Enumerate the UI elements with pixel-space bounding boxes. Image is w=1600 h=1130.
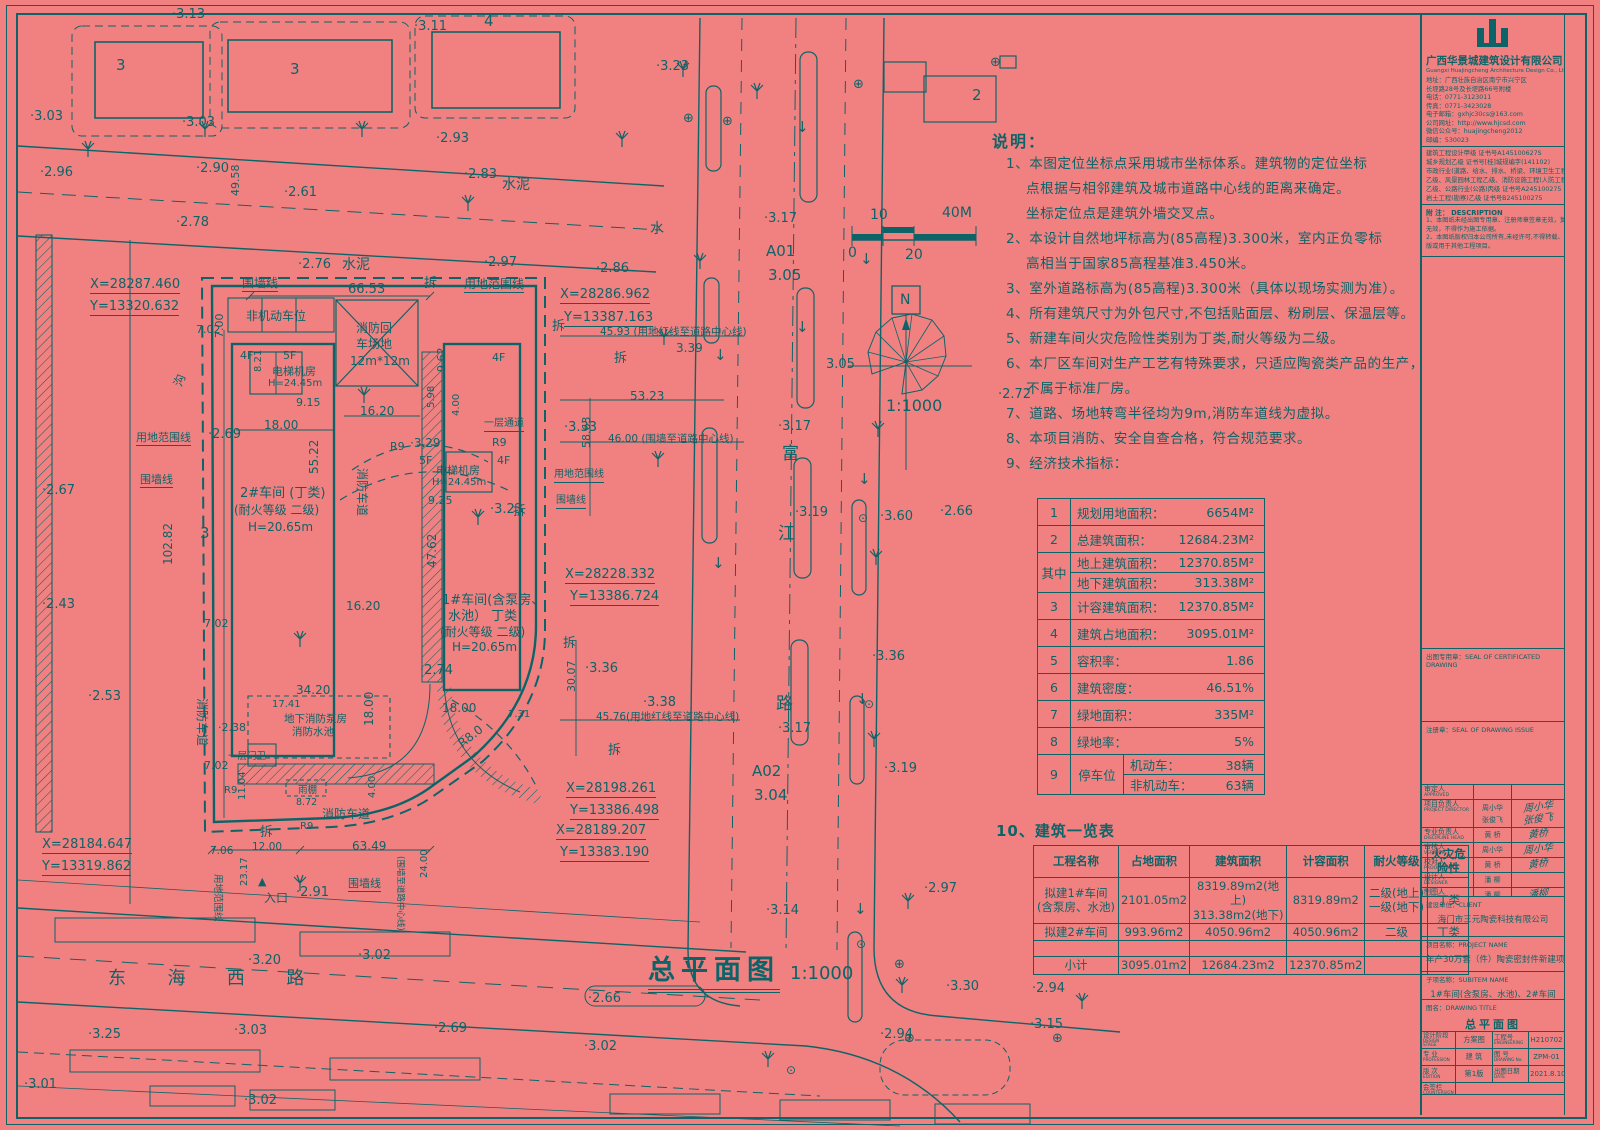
- info-grid-label: 会签栏COUNTERSIGN: [1422, 1083, 1456, 1095]
- personnel-table: 审定人APPROVED项目负责人PROJECT DIRECTOR周小华张俊飞周小…: [1422, 785, 1564, 897]
- personnel-role-cn: 设计人: [1424, 874, 1471, 881]
- econ-body: 计容建筑面积：12370.85M²: [1071, 593, 1264, 619]
- building-table-header: 占地面积: [1119, 846, 1190, 878]
- drawing-sheet: ·3.13·3.11433·3.232·3.03·2.96·3.03·2.93·…: [0, 0, 1600, 1130]
- main-title-scale: 1:1000: [790, 963, 853, 984]
- building-table-row: 拟建2#车间993.96m24050.96m24050.96m2二级丁类: [1034, 923, 1469, 940]
- signature-text: 黄桥: [1528, 828, 1548, 843]
- subitem-block: 子项名称：SUBITEM NAME 1#车间(含泵房、水池)、2#车间: [1422, 972, 1564, 1000]
- certificate-line: 市政行业(道路、给水、排水、桥梁、环境卫生工程): [1426, 167, 1560, 176]
- note-line: 5、新建车间火灾危险性类别为丁类,耐火等级为二级。: [992, 327, 1420, 352]
- building-table-header: 计容面积: [1287, 846, 1365, 878]
- building-table-cell: 8319.89m2(地上) 313.38m2(地下): [1190, 877, 1287, 923]
- personnel-name-text: 黄 桥: [1484, 829, 1500, 841]
- description-label: 附 注： DESCRIPTION: [1426, 207, 1560, 217]
- personnel-role-en: APPROVED: [1424, 793, 1471, 798]
- building-table-cell: 3095.01m2: [1119, 957, 1190, 974]
- building-table-cell: 12684.23m2: [1190, 957, 1287, 974]
- info-grid-label-en: ENGINEERING: [1494, 1041, 1527, 1046]
- personnel-signature: 潘柳: [1512, 888, 1564, 897]
- econ-subcol: 机动车：38辆非机动车：63辆: [1124, 755, 1264, 794]
- econ-no: 8: [1038, 728, 1071, 754]
- main-title: 总平面图1:1000: [648, 948, 853, 987]
- building-table-row: 小计3095.01m212684.23m212370.85m2: [1034, 957, 1469, 974]
- econ-value: 1.86: [1226, 653, 1254, 668]
- certificate-line: 乙级、风景园林工程乙级、消防设施工程(人防工程): [1426, 176, 1560, 185]
- econ-row: 其中地上建筑面积：12370.85M²地下建筑面积：313.38M²: [1038, 552, 1264, 592]
- note-line: 坐标定位点是建筑外墙交叉点。: [992, 202, 1420, 227]
- info-grid-value: 建 筑: [1456, 1049, 1493, 1065]
- project-name: 年产30万套（件）陶瓷密封件新建项目: [1426, 953, 1560, 965]
- personnel-role: 制图人CARTOGRAPHIC MAN: [1422, 888, 1474, 897]
- info-grid-label: 专 业PROFESSION: [1422, 1049, 1456, 1065]
- drawing-title-value: 总平面图: [1426, 1016, 1560, 1032]
- note-line: 7、道路、场地转弯半径均为9m,消防车道线为虚拟。: [992, 402, 1420, 427]
- company-contact-line: 地址：广西壮族自治区南宁市兴宁区: [1426, 77, 1560, 86]
- personnel-signature: 黄桥: [1512, 828, 1564, 842]
- note-line: 6、本厂区车间对生产工艺有特殊要求，只适应陶瓷类产品的生产，: [992, 352, 1420, 377]
- econ-no: 9: [1038, 755, 1071, 794]
- info-grid-row: 会签栏COUNTERSIGN: [1422, 1083, 1564, 1095]
- company-contact-line: 长堽路28号及长堽路66号附楼: [1426, 86, 1560, 95]
- drawing-info-grid: 设计阶段DESIGN STAGE方案图工程号ENGINEERINGH210702…: [1422, 1032, 1564, 1095]
- notes-lines: 1、本图定位坐标点采用城市坐标体系。建筑物的定位坐标点根据与相邻建筑及城市道路中…: [992, 152, 1420, 477]
- company-name: 广西华景城建筑设计有限公司: [1426, 53, 1560, 68]
- building-table-cell: 二级(地上) 一级(地下): [1365, 877, 1428, 923]
- notes-panel: 说明： 1、本图定位坐标点采用城市坐标体系。建筑物的定位坐标点根据与相邻建筑及城…: [992, 128, 1420, 477]
- econ-row: 8绿地率：5%: [1038, 727, 1264, 754]
- info-grid-label-en: PROFESSION: [1423, 1058, 1454, 1063]
- econ-value: 5%: [1234, 734, 1254, 749]
- client-block: 建设单位：CLIENT 海门市三元陶瓷科技有限公司: [1422, 897, 1564, 937]
- building-table-header: 建筑面积: [1190, 846, 1287, 878]
- subitem-name: 1#车间(含泵房、水池)、2#车间: [1426, 988, 1560, 1000]
- building-table-cell: [1119, 941, 1190, 957]
- drawing-title-block: 图名：DRAWING TITLE 总平面图: [1422, 1000, 1564, 1032]
- note-line: 点根据与相邻建筑及城市道路中心线的距离来确定。: [992, 177, 1420, 202]
- personnel-signature: [1512, 873, 1564, 887]
- econ-label: 建筑占地面积：: [1077, 624, 1165, 643]
- econ-no: 3: [1038, 593, 1071, 619]
- building-table-cell: 8319.89m2: [1287, 877, 1365, 923]
- info-grid-label-en: DESIGN STAGE: [1423, 1039, 1454, 1048]
- info-grid-row: 版 次EDITION第1版出图日期DATE2021.8.10: [1422, 1066, 1564, 1083]
- personnel-role: 设计人DESIGNER: [1422, 873, 1474, 887]
- econ-label: 规划用地面积：: [1077, 503, 1165, 522]
- building-table-cell: 二级: [1365, 923, 1428, 940]
- economic-indicators-table: 1规划用地面积：6654M²2总建筑面积：12684.23M²其中地上建筑面积：…: [1037, 498, 1265, 795]
- description-line: 版或用于其他工程项目。: [1426, 243, 1560, 252]
- title-block-tail: [1422, 1095, 1564, 1115]
- personnel-role: 项目负责人PROJECT DIRECTOR: [1422, 800, 1474, 827]
- econ-label: 容积率：: [1077, 651, 1127, 670]
- personnel-name: 周小华: [1474, 843, 1512, 857]
- econ-label: 计容建筑面积：: [1077, 597, 1165, 616]
- econ-value: 38辆: [1226, 755, 1254, 774]
- econ-body: 规划用地面积：6654M²: [1071, 499, 1264, 525]
- description-block: 附 注： DESCRIPTION 1、本图纸未经出图专用章、注册师章签章无效，复…: [1422, 205, 1564, 257]
- note-line: 2、本设计自然地坪标高为(85高程)3.300米，室内正负零标: [992, 227, 1420, 252]
- econ-no: 6: [1038, 674, 1071, 700]
- info-grid-label-en: DRAWING No.: [1494, 1058, 1527, 1063]
- econ-value: 6654M²: [1206, 505, 1254, 520]
- personnel-signature: 周小华张俊飞: [1512, 800, 1564, 827]
- personnel-name-text: 周小华: [1482, 844, 1503, 856]
- econ-no: 7: [1038, 701, 1071, 727]
- note-line: 9、经济技术指标：: [992, 452, 1420, 477]
- econ-row: 3计容建筑面积：12370.85M²: [1038, 592, 1264, 619]
- econ-value: 335M²: [1214, 707, 1254, 722]
- econ-no: 1: [1038, 499, 1071, 525]
- econ-label: 机动车：: [1130, 755, 1180, 774]
- building-table-cell: 4050.96m2: [1287, 923, 1365, 940]
- personnel-row: 制图人CARTOGRAPHIC MAN潘 柳潘柳: [1422, 888, 1564, 897]
- building-table-header-row: 工程名称占地面积建筑面积计容面积耐火等级火灾危险性: [1034, 846, 1469, 878]
- info-grid-value: H210702: [1529, 1032, 1564, 1048]
- registration-seal-label: 注册章：SEAL OF DRAWING ISSUE: [1426, 724, 1560, 734]
- building-table-cell: [1365, 957, 1428, 974]
- econ-body: 容积率：1.86: [1071, 647, 1264, 673]
- personnel-name: [1474, 785, 1512, 799]
- certified-drawing-seal-label: 出图专用章：SEAL OF CERTIFICATED DRAWING: [1426, 651, 1560, 669]
- econ-value: 12684.23M²: [1179, 532, 1254, 547]
- personnel-role: 专业负责人DISCIPLINE HEAD: [1422, 828, 1474, 842]
- company-contact-line: 邮编：530023: [1426, 137, 1560, 146]
- main-title-text: 总平面图: [648, 955, 780, 993]
- description-line: 无效，不得作为施工依据。: [1426, 226, 1560, 235]
- building-table-cell: 2101.05m2: [1119, 877, 1190, 923]
- personnel-row: 审核人VERIFIER周小华周小华: [1422, 843, 1564, 858]
- certified-drawing-seal-area: 出图专用章：SEAL OF CERTIFICATED DRAWING: [1422, 649, 1564, 722]
- info-grid-value: 方案图: [1456, 1032, 1493, 1048]
- info-grid-label-en: EDITION: [1423, 1075, 1454, 1080]
- info-grid-label: 图 号DRAWING No.: [1493, 1049, 1529, 1065]
- notes-heading: 说明：: [992, 128, 1420, 152]
- building-table-heading: 10、建筑一览表: [996, 820, 1115, 841]
- certificate-line: 建筑工程设计甲级 证书号A145100627S: [1426, 149, 1560, 158]
- info-grid-label: 版 次EDITION: [1422, 1066, 1456, 1082]
- signature-text: 周小华: [1523, 842, 1553, 858]
- econ-label: 总建筑面积：: [1077, 530, 1152, 549]
- econ-value: 63辆: [1226, 775, 1254, 794]
- econ-row: 7绿地面积：335M²: [1038, 700, 1264, 727]
- econ-label: 地上建筑面积：: [1077, 553, 1165, 572]
- econ-row: 4建筑占地面积：3095.01M²: [1038, 619, 1264, 646]
- personnel-signature: [1512, 785, 1564, 799]
- note-line: 4、所有建筑尺寸为外包尺寸,不包括贴面层、粉刷层、保温层等。: [992, 302, 1420, 327]
- description-line: 2、本图纸版权归本公司所有,未经许可,不得转载、翻: [1426, 234, 1560, 243]
- note-line: 3、室外道路标高为(85高程)3.300米（具体以现场实测为准）。: [992, 277, 1420, 302]
- econ-no: 4: [1038, 620, 1071, 646]
- econ-row: 2总建筑面积：12684.23M²: [1038, 525, 1264, 552]
- personnel-role: 审定人APPROVED: [1422, 785, 1474, 799]
- econ-subrow: 地下建筑面积：313.38M²: [1071, 572, 1264, 592]
- personnel-role-cn: 审定人: [1424, 786, 1471, 793]
- personnel-name-text: 潘 柳: [1484, 874, 1500, 886]
- info-grid-row: 专 业PROFESSION建 筑图 号DRAWING No.ZPM-01: [1422, 1049, 1564, 1066]
- econ-body: 总建筑面积：12684.23M²: [1071, 526, 1264, 552]
- project-label: 项目名称：PROJECT NAME: [1426, 939, 1560, 949]
- info-grid-label-en: DATE: [1494, 1075, 1527, 1080]
- building-table-cell: 小计: [1034, 957, 1119, 974]
- personnel-name-text: 周小华: [1482, 802, 1503, 814]
- personnel-name: 潘 柳: [1474, 888, 1512, 897]
- drawing-title-label: 图名：DRAWING TITLE: [1426, 1002, 1560, 1012]
- building-list-table: 工程名称占地面积建筑面积计容面积耐火等级火灾危险性拟建1#车间 (含泵房、水池)…: [1033, 845, 1469, 975]
- company-contact-line: 电子邮箱：gxhjc30cs@163.com: [1426, 111, 1560, 120]
- econ-subrow: 非机动车：63辆: [1124, 774, 1264, 794]
- econ-row: 6建筑密度：46.51%: [1038, 673, 1264, 700]
- econ-value: 313.38M²: [1194, 575, 1254, 590]
- certificates-block: 建筑工程设计甲级 证书号A145100627S城乡规划乙级 证书号[桂]城规编字…: [1422, 147, 1564, 205]
- personnel-name-text: 张俊飞: [1482, 814, 1503, 826]
- econ-no: 其中: [1038, 553, 1071, 592]
- personnel-row: 校对人PROOFREADER黄 桥黄桥: [1422, 858, 1564, 873]
- stamp-area: [1422, 257, 1564, 649]
- certificate-line: 城乡规划乙级 证书号[桂]城规编字(141102): [1426, 158, 1560, 167]
- econ-label: 非机动车：: [1130, 775, 1193, 794]
- personnel-signature: 周小华: [1512, 843, 1564, 857]
- personnel-role-en: PROJECT DIRECTOR: [1424, 808, 1471, 813]
- personnel-name: 周小华张俊飞: [1474, 800, 1512, 827]
- personnel-name-text: 潘 柳: [1484, 889, 1500, 897]
- company-contact-line: 电话：0771-3123011: [1426, 94, 1560, 103]
- building-table-cell: [1034, 941, 1119, 957]
- company-block: 广西华景城建筑设计有限公司 Guangxi Huajingcheng Archi…: [1422, 13, 1564, 147]
- personnel-role-en: DISCIPLINE HEAD: [1424, 836, 1471, 841]
- client-name: 海门市三元陶瓷科技有限公司: [1426, 913, 1560, 925]
- econ-row: 9停车位机动车：38辆非机动车：63辆: [1038, 754, 1264, 794]
- econ-body: 建筑密度：46.51%: [1071, 674, 1264, 700]
- signature-text: 黄桥: [1528, 858, 1548, 873]
- company-contact-line: 微信公众号：huajingcheng2012: [1426, 128, 1560, 137]
- econ-value: 46.51%: [1206, 680, 1254, 695]
- personnel-role-cn: 制图人: [1424, 889, 1471, 896]
- econ-subcol: 地上建筑面积：12370.85M²地下建筑面积：313.38M²: [1071, 553, 1264, 592]
- econ-label: 绿地面积：: [1077, 705, 1140, 724]
- econ-subrow: 机动车：38辆: [1124, 755, 1264, 774]
- building-table-row: 拟建1#车间 (含泵房、水池)2101.05m28319.89m2(地上) 31…: [1034, 877, 1469, 923]
- company-name-en: Guangxi Huajingcheng Architecture Design…: [1426, 68, 1560, 74]
- info-grid-value: ZPM-01: [1529, 1049, 1564, 1065]
- client-label: 建设单位：CLIENT: [1426, 899, 1560, 909]
- building-table-cell: 拟建1#车间 (含泵房、水池): [1034, 877, 1119, 923]
- econ-label: 建筑密度：: [1077, 678, 1140, 697]
- project-block: 项目名称：PROJECT NAME 年产30万套（件）陶瓷密封件新建项目: [1422, 937, 1564, 972]
- personnel-signature: 黄桥: [1512, 858, 1564, 872]
- building-table-cell: 993.96m2: [1119, 923, 1190, 940]
- econ-subrow: 地上建筑面积：12370.85M²: [1071, 553, 1264, 572]
- info-grid-value: 2021.8.10: [1529, 1066, 1564, 1082]
- building-table-row: [1034, 941, 1469, 957]
- subitem-label: 子项名称：SUBITEM NAME: [1426, 974, 1560, 984]
- company-contacts: 地址：广西壮族自治区南宁市兴宁区长堽路28号及长堽路66号附楼电话：0771-3…: [1426, 77, 1560, 145]
- personnel-role: 校对人PROOFREADER: [1422, 858, 1474, 872]
- econ-no: 2: [1038, 526, 1071, 552]
- description-line: 1、本图纸未经出图专用章、注册师章签章无效，复印: [1426, 217, 1560, 226]
- econ-row: 1规划用地面积：6654M²: [1038, 499, 1264, 525]
- info-grid-label: 工程号ENGINEERING: [1493, 1032, 1529, 1048]
- building-table-header: 工程名称: [1034, 846, 1119, 878]
- econ-label: 地下建筑面积：: [1077, 573, 1165, 592]
- building-table-cell: 4050.96m2: [1190, 923, 1287, 940]
- company-logo-icon: [1476, 19, 1510, 49]
- personnel-name-text: 黄 桥: [1484, 859, 1500, 871]
- info-grid-label: 设计阶段DESIGN STAGE: [1422, 1032, 1456, 1048]
- building-table-cell: [1190, 941, 1287, 957]
- personnel-name: 黄 桥: [1474, 828, 1512, 842]
- econ-park-label: 停车位: [1071, 755, 1124, 794]
- info-grid-value: 第1版: [1456, 1066, 1493, 1082]
- registration-seal-area: 注册章：SEAL OF DRAWING ISSUE: [1422, 722, 1564, 785]
- signature-text: 潘柳: [1528, 888, 1548, 897]
- title-block: 广西华景城建筑设计有限公司 Guangxi Huajingcheng Archi…: [1420, 13, 1564, 1115]
- building-table-cell: 拟建2#车间: [1034, 923, 1119, 940]
- personnel-role-cn: 专业负责人: [1424, 829, 1471, 836]
- econ-no: 5: [1038, 647, 1071, 673]
- econ-value: 3095.01M²: [1187, 626, 1255, 641]
- note-line: 不属于标准厂房。: [992, 377, 1420, 402]
- personnel-role-cn: 审核人: [1424, 844, 1471, 851]
- building-table-cell: [1365, 941, 1428, 957]
- personnel-row: 审定人APPROVED: [1422, 785, 1564, 800]
- personnel-row: 设计人DESIGNER潘 柳: [1422, 873, 1564, 888]
- econ-value: 12370.85M²: [1179, 599, 1254, 614]
- building-table-cell: [1287, 941, 1365, 957]
- econ-body: 绿地面积：335M²: [1071, 701, 1264, 727]
- personnel-row: 项目负责人PROJECT DIRECTOR周小华张俊飞周小华张俊飞: [1422, 800, 1564, 828]
- building-table-header: 耐火等级: [1365, 846, 1428, 878]
- personnel-name: 潘 柳: [1474, 873, 1512, 887]
- building-table-cell: 12370.85m2: [1287, 957, 1365, 974]
- certificate-line: 乙级、公路行业(公路)丙级 证书号A245100275: [1426, 185, 1560, 194]
- company-contact-line: 公司网址：http://www.hjcsd.com: [1426, 120, 1560, 129]
- personnel-name: 黄 桥: [1474, 858, 1512, 872]
- personnel-role-en: DESIGNER: [1424, 881, 1471, 886]
- personnel-row: 专业负责人DISCIPLINE HEAD黄 桥黄桥: [1422, 828, 1564, 843]
- personnel-role: 审核人VERIFIER: [1422, 843, 1474, 857]
- econ-row: 5容积率：1.86: [1038, 646, 1264, 673]
- econ-value: 12370.85M²: [1179, 555, 1254, 570]
- company-contact-line: 传真：0771-3423028: [1426, 103, 1560, 112]
- note-line: 高相当于国家85高程基准3.450米。: [992, 252, 1420, 277]
- econ-body: 绿地率：5%: [1071, 728, 1264, 754]
- personnel-role-en: PROOFREADER: [1424, 866, 1471, 871]
- personnel-role-cn: 校对人: [1424, 859, 1471, 866]
- note-line: 1、本图定位坐标点采用城市坐标体系。建筑物的定位坐标: [992, 152, 1420, 177]
- econ-body: 建筑占地面积：3095.01M²: [1071, 620, 1264, 646]
- info-grid-countersign-cell: [1456, 1083, 1564, 1095]
- personnel-role-en: VERIFIER: [1424, 851, 1471, 856]
- right-margin-strip: [1564, 13, 1584, 1115]
- econ-label: 绿地率：: [1077, 732, 1127, 751]
- certificate-line: 岩土工程(勘察)乙级 证书号B245100275: [1426, 194, 1560, 203]
- personnel-role-cn: 项目负责人: [1424, 801, 1471, 808]
- info-grid-label: 出图日期DATE: [1493, 1066, 1529, 1082]
- info-grid-row: 设计阶段DESIGN STAGE方案图工程号ENGINEERINGH210702: [1422, 1032, 1564, 1049]
- note-line: 8、本项目消防、安全自查合格，符合规范要求。: [992, 427, 1420, 452]
